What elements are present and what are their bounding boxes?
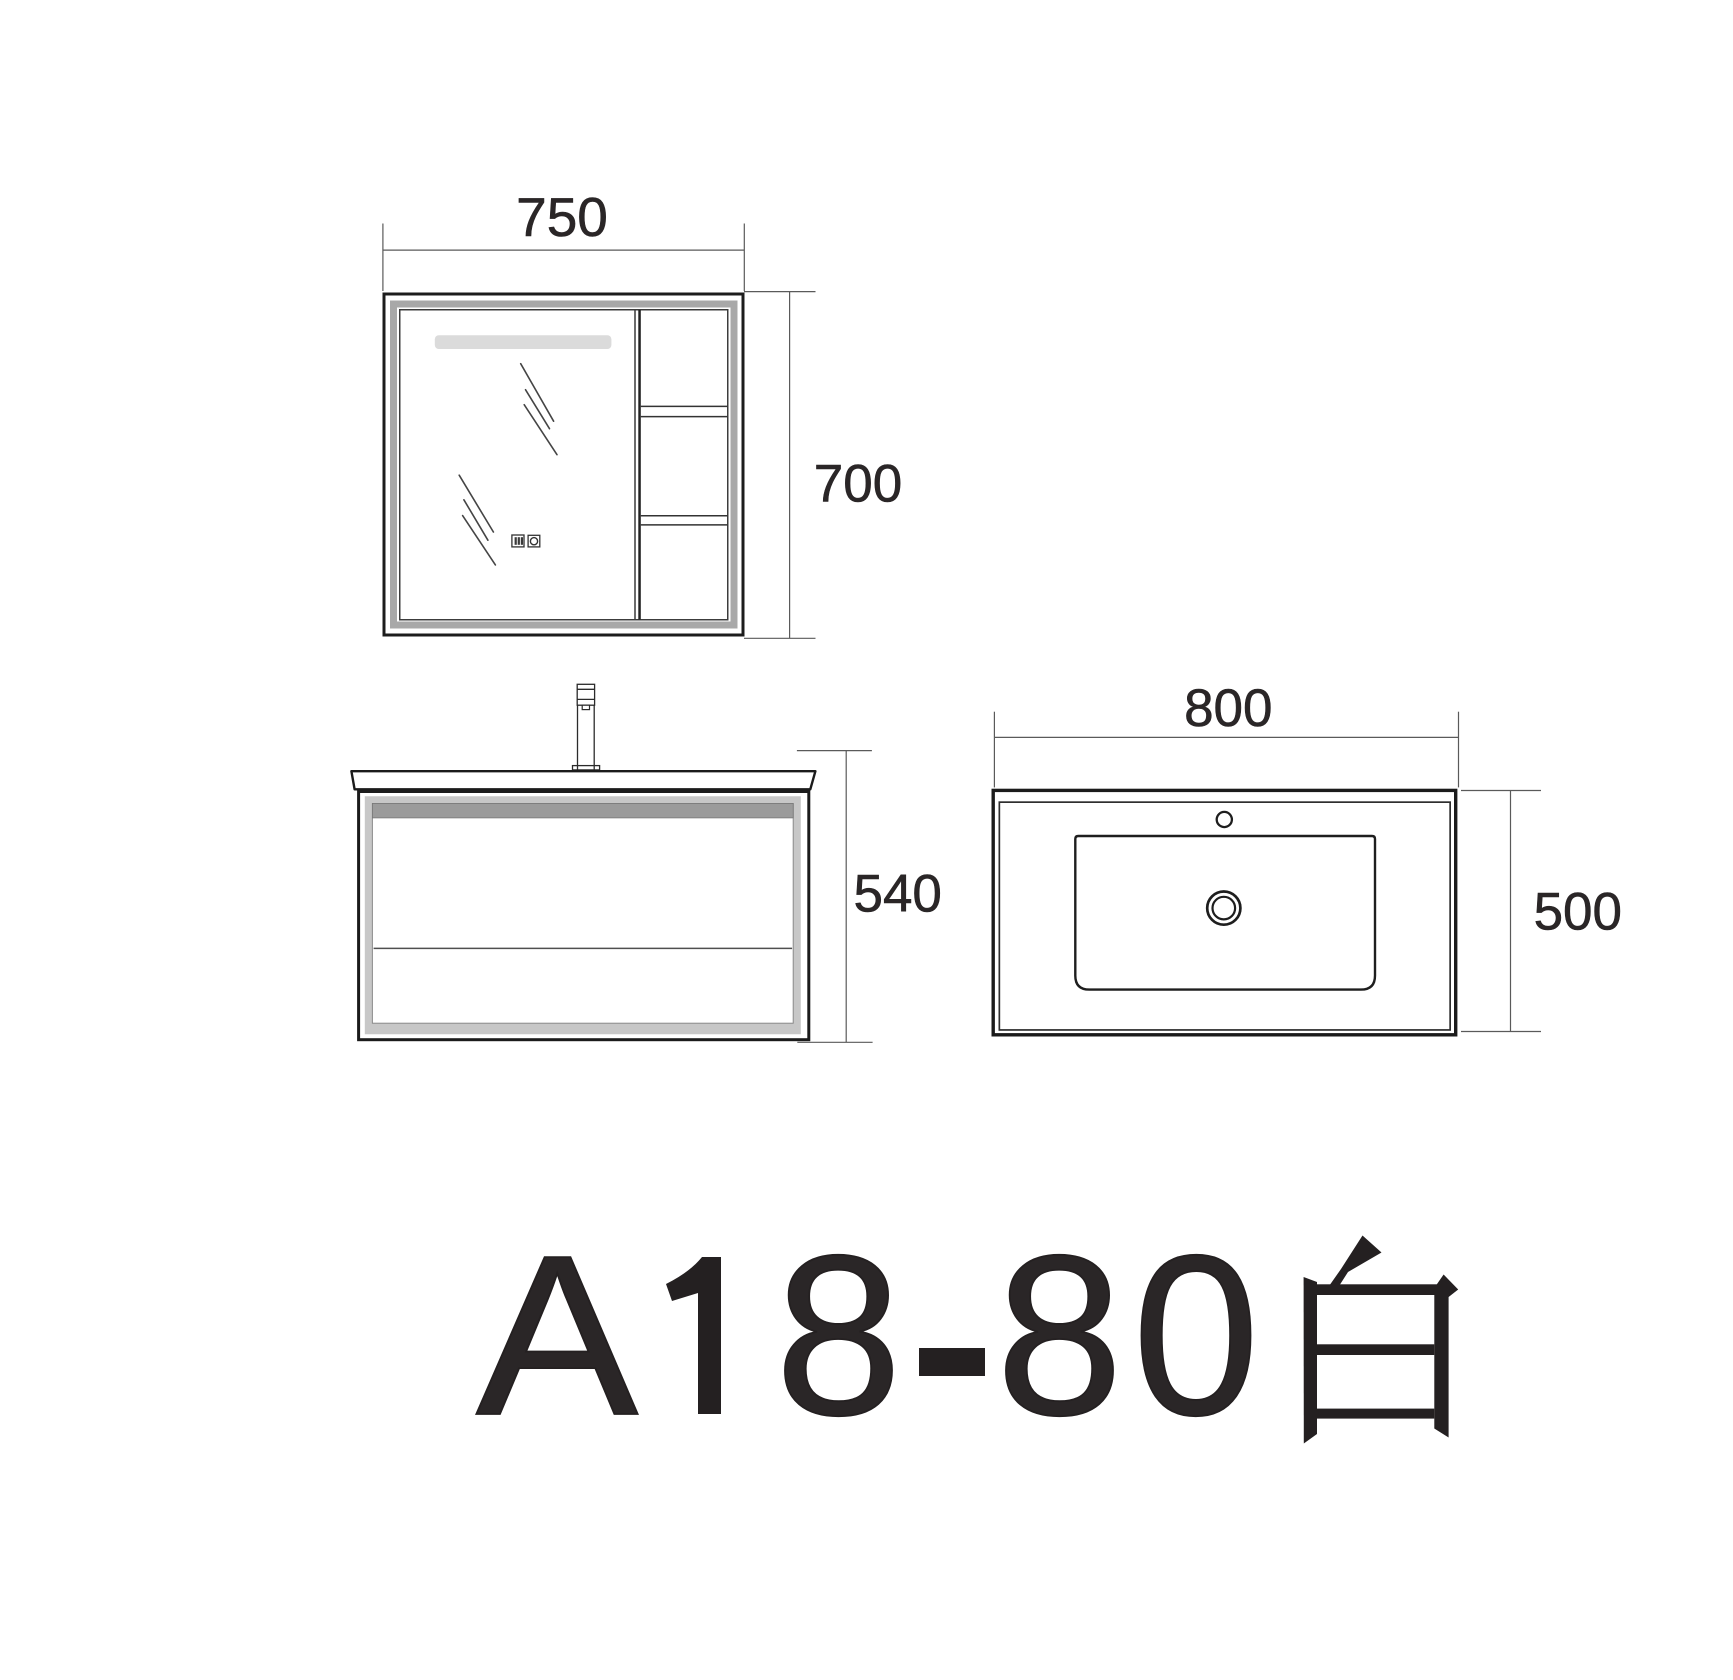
svg-text:8: 8 — [996, 1209, 1123, 1463]
svg-text:800: 800 — [1184, 679, 1272, 738]
svg-text:500: 500 — [1534, 882, 1622, 941]
svg-text:A: A — [476, 1208, 638, 1462]
svg-text:540: 540 — [853, 865, 941, 924]
svg-text:0: 0 — [1133, 1209, 1260, 1463]
svg-text:750: 750 — [516, 186, 608, 248]
svg-text:700: 700 — [814, 455, 902, 514]
svg-text:8: 8 — [775, 1209, 902, 1463]
